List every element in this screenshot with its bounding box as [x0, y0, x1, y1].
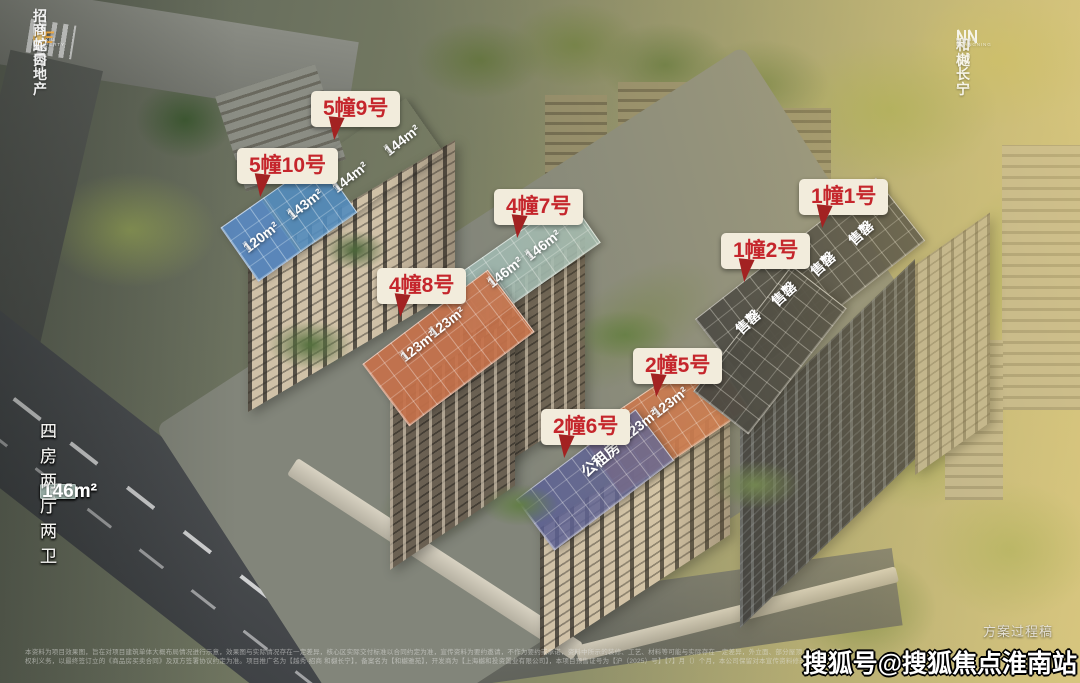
legend-layout-label: 四房两厅两卫: [40, 417, 58, 567]
heyue-sub-text: HEYUE CHANGNING: [956, 38, 992, 47]
watermark: 搜狐号@搜狐焦点淮南站: [803, 644, 1077, 680]
aerial-render-stage: 建面144m²建面144m²建面143m²建面120m²建面146m²建面146…: [0, 0, 1080, 683]
disclaimer-line-2: 权利义务，以最终签订立的《商品房买卖合同》及双方签署协议约定为准。项目推广名为【…: [25, 655, 840, 665]
background-tower: [1002, 145, 1080, 410]
china-merchants-name: 招商蛇口: [33, 9, 47, 68]
draft-note: 方案过程稿: [983, 621, 1053, 640]
